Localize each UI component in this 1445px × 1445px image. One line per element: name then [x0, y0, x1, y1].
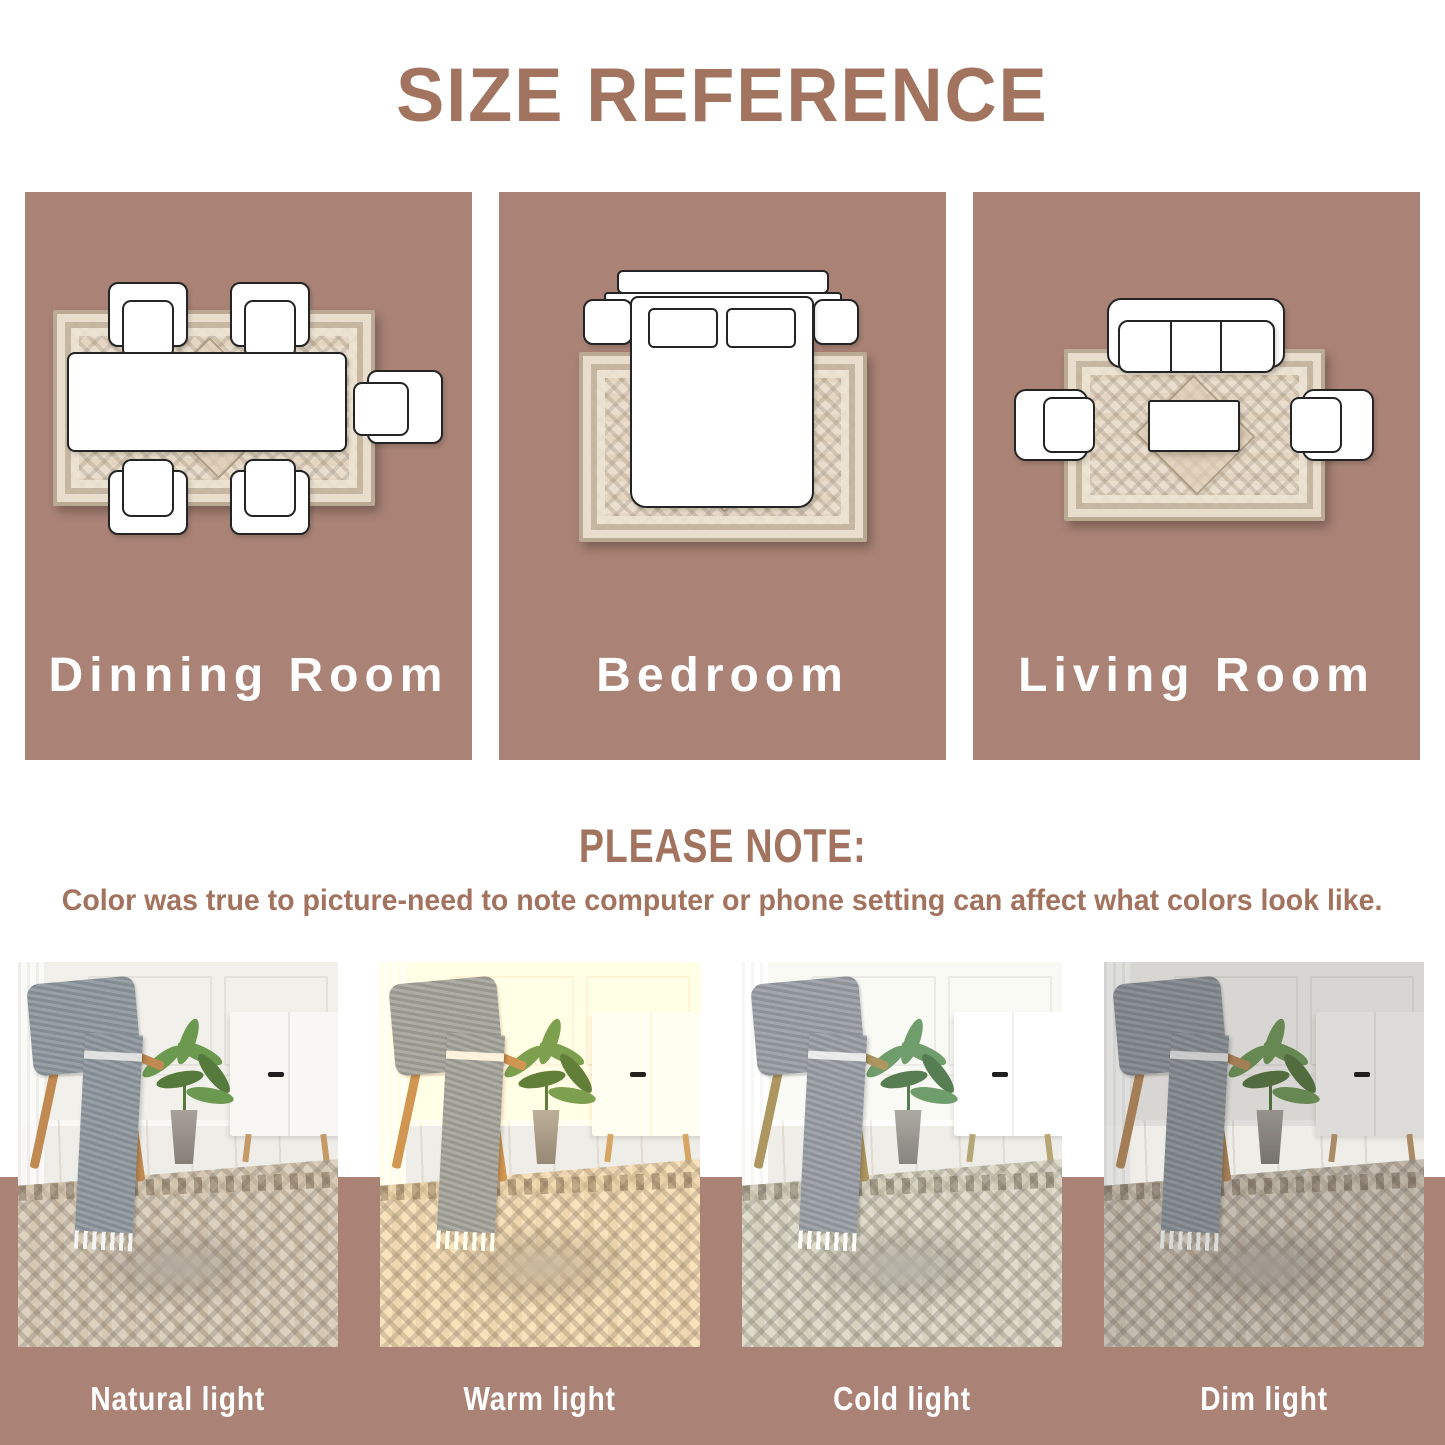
- bed: [630, 296, 814, 508]
- pillow-right: [726, 308, 796, 348]
- product-infographic: SIZE REFERENCE Dinning Room: [0, 0, 1445, 1445]
- throw-blanket: [75, 1033, 143, 1234]
- lighting-label: Dim light: [1104, 1380, 1424, 1418]
- nightstand-right: [813, 299, 859, 345]
- lighting-label: Cold light: [742, 1380, 1062, 1418]
- rug-photo: [380, 1154, 700, 1347]
- dining-chair-bottom-left: [108, 470, 188, 535]
- chair-cushion: [1290, 397, 1342, 453]
- room-scene: [380, 962, 700, 1347]
- bed-headboard: [617, 270, 829, 294]
- room-photo: [1104, 962, 1424, 1347]
- panel-bedroom: Bedroom: [499, 192, 946, 760]
- plant-stem: [907, 1082, 910, 1114]
- room-label: Living Room: [973, 648, 1420, 703]
- room-photo: [380, 962, 700, 1347]
- lighting-photo-card: Dim light: [1104, 962, 1424, 1427]
- chair-cushion: [122, 459, 174, 517]
- plant-stem: [1269, 1082, 1272, 1114]
- room-scene: [18, 962, 338, 1347]
- lighting-photo-card: Warm light: [380, 962, 700, 1427]
- dining-chair-bottom-right: [230, 470, 310, 535]
- cabinet-handle: [992, 1072, 1008, 1077]
- dining-chair-right: [367, 370, 443, 444]
- cabinet: [592, 1012, 700, 1136]
- lighting-photo-card: Natural light: [18, 962, 338, 1427]
- lighting-label-text: Natural light: [91, 1380, 266, 1418]
- pillow-left: [648, 308, 718, 348]
- throw-blanket: [799, 1033, 867, 1234]
- rug-photo: [742, 1154, 1062, 1347]
- rug-photo: [18, 1154, 338, 1347]
- sofa-seat: [1118, 320, 1275, 373]
- lighting-comparison-row: Natural light: [18, 962, 1427, 1427]
- lighting-label-text: Dim light: [1200, 1380, 1328, 1418]
- lighting-photo-card: Cold light: [742, 962, 1062, 1427]
- cabinet: [954, 1012, 1062, 1136]
- page-title-text: SIZE REFERENCE: [396, 52, 1048, 139]
- chair-cushion: [122, 300, 174, 358]
- size-reference-panels: Dinning Room Bedroom: [25, 192, 1420, 760]
- throw-blanket: [1161, 1033, 1229, 1234]
- room-scene: [1104, 962, 1424, 1347]
- room-label: Bedroom: [499, 648, 946, 703]
- note-heading: PLEASE NOTE:: [0, 818, 1445, 873]
- plant-stem: [183, 1082, 186, 1114]
- coffee-table: [1148, 400, 1240, 452]
- armchair-right: [1302, 389, 1374, 461]
- dining-chair-top-right: [230, 282, 310, 347]
- chair-cushion: [244, 459, 296, 517]
- room-photo: [742, 962, 1062, 1347]
- note-heading-text: PLEASE NOTE:: [579, 818, 866, 873]
- lighting-label-text: Warm light: [464, 1380, 616, 1418]
- chair-cushion: [353, 382, 409, 436]
- page-title: SIZE REFERENCE: [0, 52, 1445, 139]
- note-body-text: Color was true to picture-need to note c…: [62, 884, 1383, 918]
- dining-chair-top-left: [108, 282, 188, 347]
- cabinet-handle: [630, 1072, 646, 1077]
- cabinet: [1316, 1012, 1424, 1136]
- cabinet: [230, 1012, 338, 1136]
- panel-dining-room: Dinning Room: [25, 192, 472, 760]
- rug-photo: [1104, 1154, 1424, 1347]
- throw-blanket: [437, 1033, 505, 1234]
- nightstand-left: [583, 299, 633, 345]
- armchair-left: [1014, 389, 1088, 461]
- chair-cushion: [244, 300, 296, 358]
- cabinet-handle: [268, 1072, 284, 1077]
- room-scene: [742, 962, 1062, 1347]
- lighting-label: Natural light: [18, 1380, 338, 1418]
- panel-living-room: Living Room: [973, 192, 1420, 760]
- lighting-label: Warm light: [380, 1380, 700, 1418]
- room-photo: [18, 962, 338, 1347]
- chair-cushion: [1043, 397, 1095, 453]
- note-body: Color was true to picture-need to note c…: [0, 884, 1445, 918]
- dining-table: [67, 352, 347, 452]
- plant-stem: [545, 1082, 548, 1114]
- lighting-label-text: Cold light: [833, 1380, 971, 1418]
- cabinet-handle: [1354, 1072, 1370, 1077]
- room-label: Dinning Room: [25, 648, 472, 703]
